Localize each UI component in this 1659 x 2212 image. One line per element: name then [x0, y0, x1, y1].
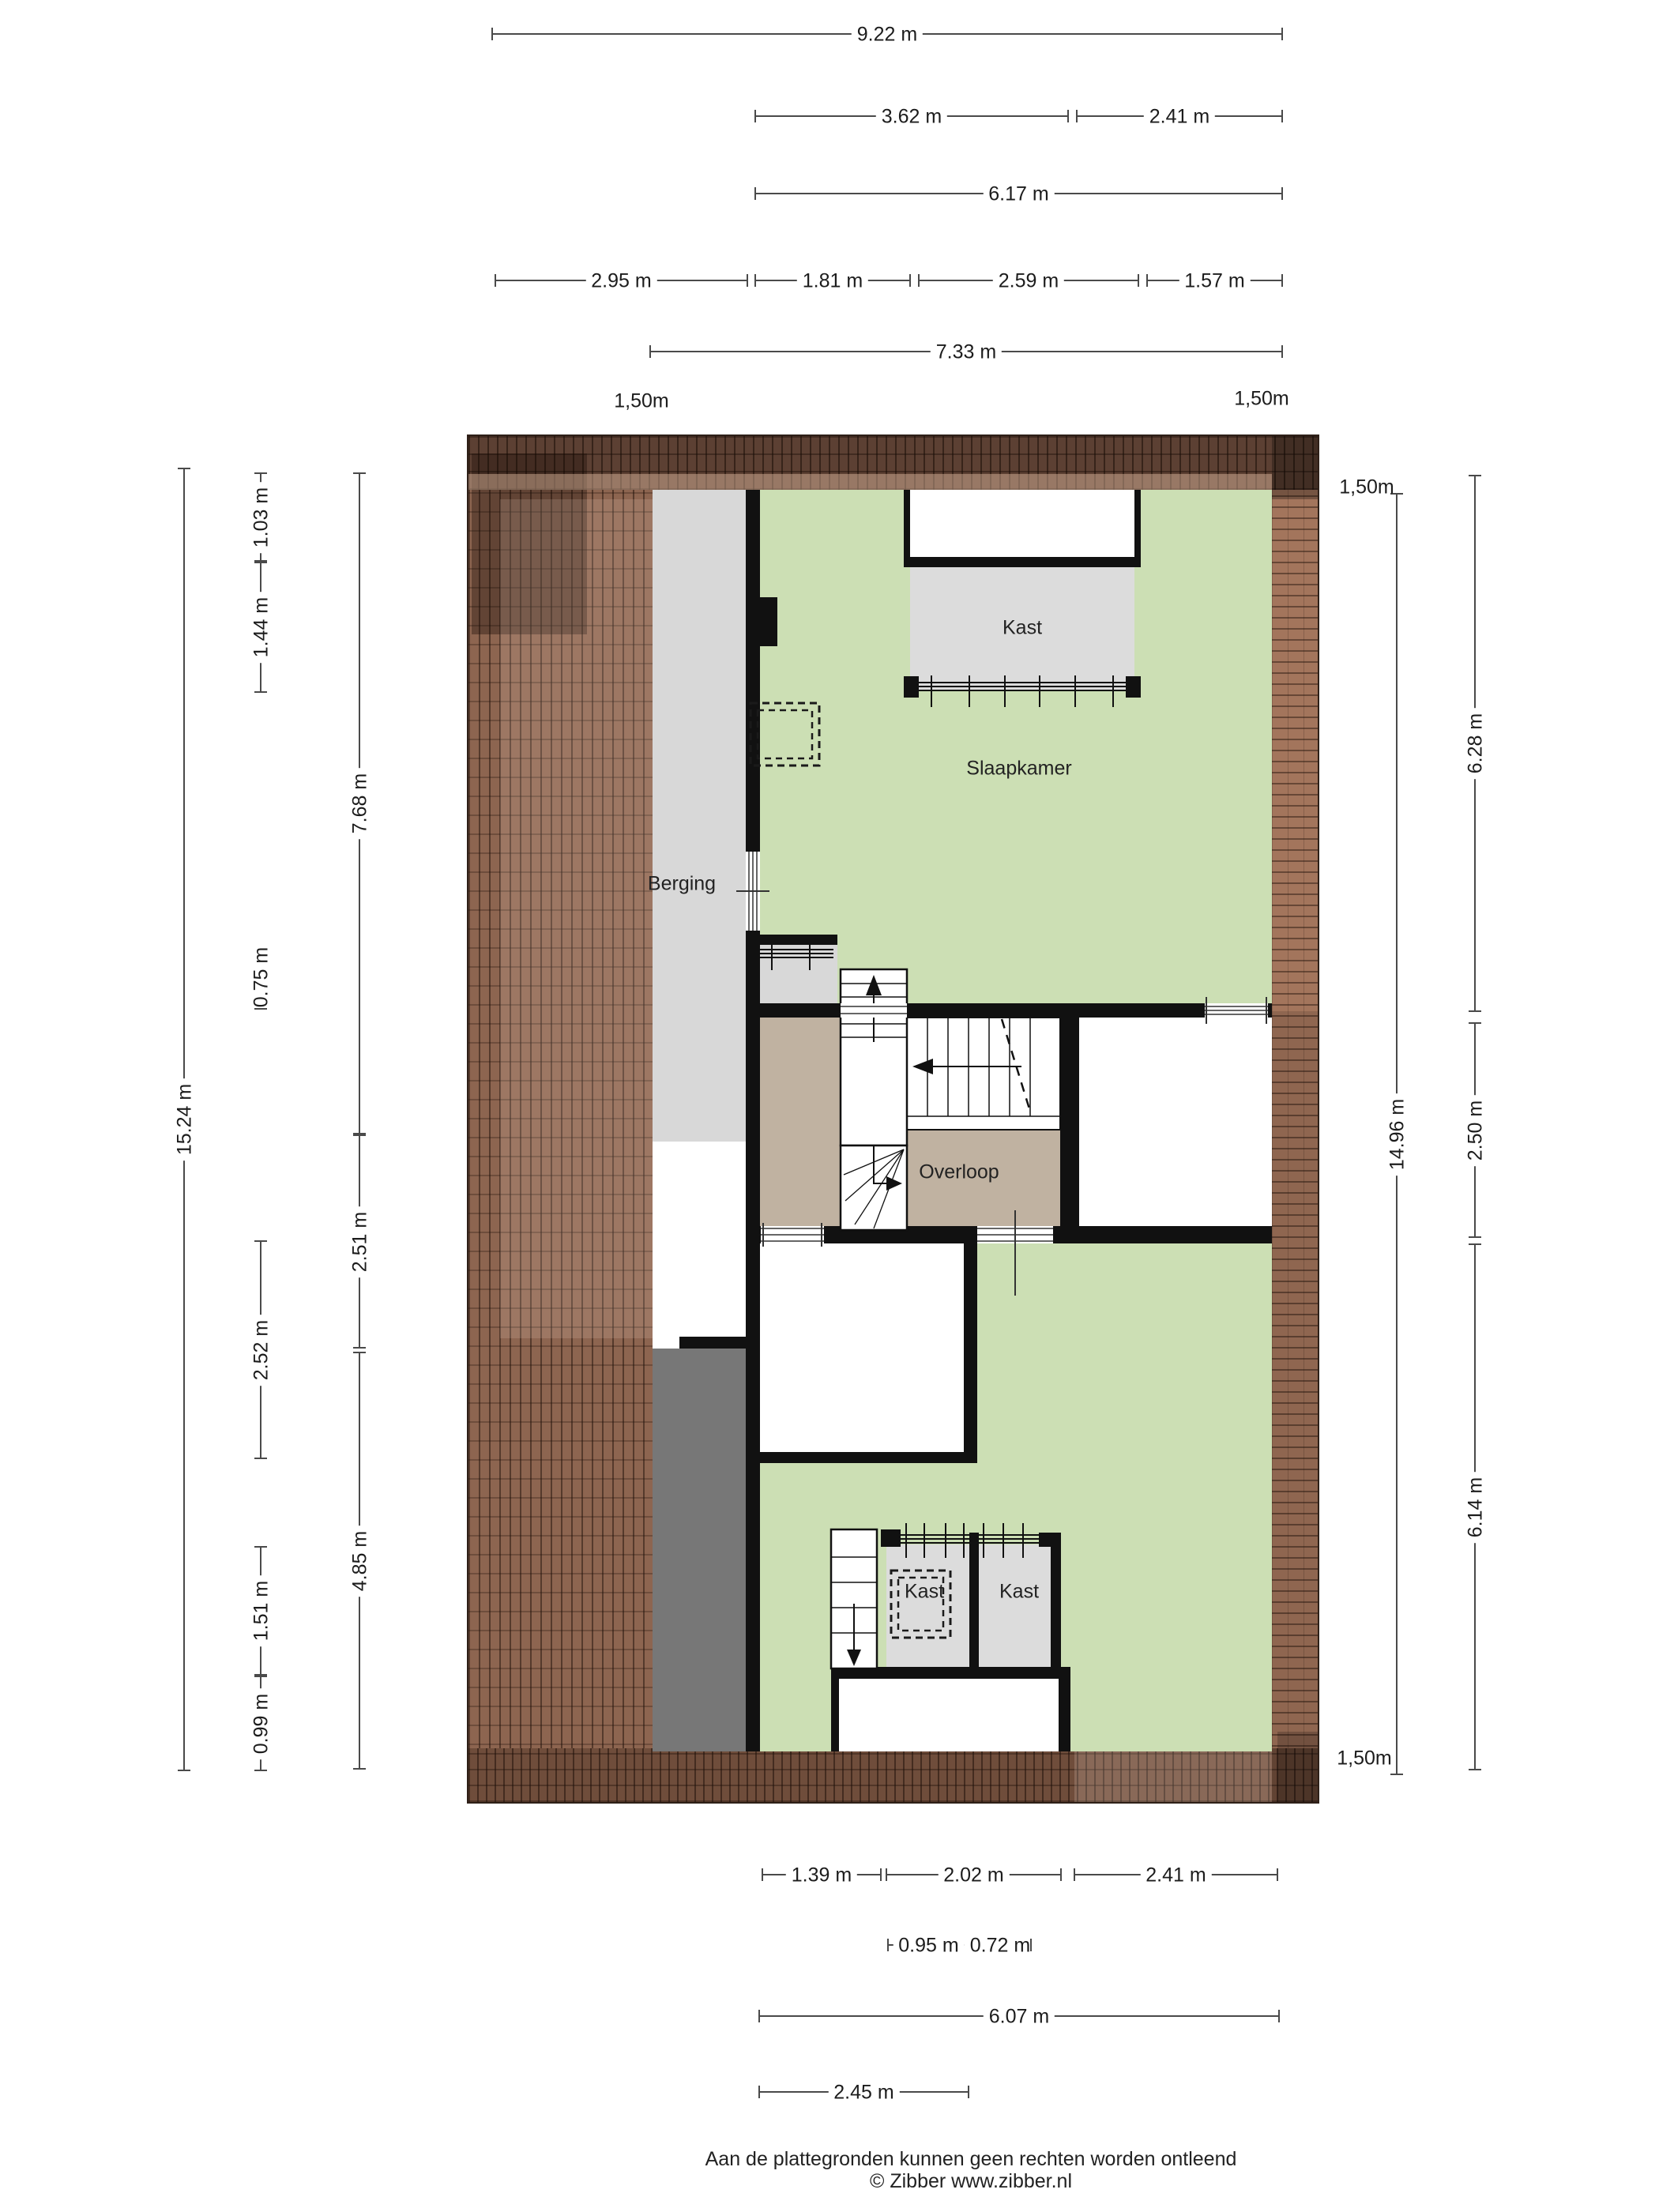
- dimension-h-2.41m: 2.41 m: [1074, 1874, 1277, 1875]
- window-bottom-wall: [761, 1223, 824, 1247]
- closet-rail-bottom-right: [979, 1523, 1039, 1558]
- loft-ladder: [831, 1529, 877, 1668]
- dimension-h-6.07m: 6.07 m: [759, 2015, 1279, 2017]
- closet-rail-small: [760, 942, 833, 970]
- skylight-dashed-top: [750, 703, 819, 766]
- dimension-v-15.24m-label: 15.24 m: [174, 1078, 197, 1161]
- closet-rail-bottom-left: [901, 1523, 969, 1558]
- dimension-h-1.39m-label: 1.39 m: [786, 1864, 857, 1887]
- dimension-v-4.85m-label: 4.85 m: [349, 1525, 372, 1596]
- window-left-wall: [736, 852, 769, 931]
- dimension-h-2.41m: 2.41 m: [1077, 115, 1282, 117]
- room-label-kast-bottom-right: Kast: [999, 1581, 1039, 1604]
- dimension-h-2.59m: 2.59 m: [919, 280, 1138, 281]
- headroom-annotation-3: 1,50m: [1337, 1747, 1391, 1770]
- dimension-v-6.28m: 6.28 m: [1474, 476, 1476, 1011]
- dimension-v-7.68m-label: 7.68 m: [349, 768, 372, 839]
- dimension-v-6.14m: 6.14 m: [1474, 1244, 1476, 1770]
- stairs-straight-up: [841, 969, 907, 1145]
- stairs-winder: [841, 1145, 907, 1230]
- dimension-h-2.02m: 2.02 m: [886, 1874, 1061, 1875]
- dimension-h-6.17m: 6.17 m: [755, 193, 1282, 194]
- dimension-v-2.52m: 2.52 m: [260, 1241, 261, 1458]
- room-label-berging: Berging: [648, 873, 716, 896]
- dimension-v-14.96m-label: 14.96 m: [1386, 1093, 1409, 1175]
- dimension-h-1.57m: 1.57 m: [1147, 280, 1282, 281]
- headroom-annotation-0: 1,50m: [614, 390, 668, 413]
- dimension-v-0.75m: 0.75 m: [260, 945, 261, 1009]
- dimension-v-7.68m: 7.68 m: [359, 473, 360, 1134]
- room-label-kast-bottom-left: Kast: [905, 1581, 944, 1604]
- dimension-h-6.07m-label: 6.07 m: [984, 2006, 1055, 2029]
- dimension-v-1.03m: 1.03 m: [260, 473, 261, 561]
- headroom-annotation-1: 1,50m: [1234, 388, 1288, 411]
- dimension-h-1.81m: 1.81 m: [755, 280, 910, 281]
- dimension-v-1.44m-label: 1.44 m: [250, 592, 273, 663]
- dimension-v-2.50m-label: 2.50 m: [1465, 1094, 1488, 1165]
- dimension-h-6.17m-label: 6.17 m: [983, 183, 1054, 206]
- dimension-h-2.41m-label: 2.41 m: [1140, 1864, 1211, 1887]
- dimension-h-0.72m: 0.72 m: [969, 1944, 1031, 1946]
- plan-symbols-layer: [468, 436, 1318, 1802]
- window-right-room: [1205, 997, 1268, 1024]
- footer-disclaimer: Aan de plattegronden kunnen geen rechten…: [705, 2148, 1237, 2171]
- dimension-h-2.59m-label: 2.59 m: [993, 270, 1064, 293]
- dimension-v-4.85m: 4.85 m: [359, 1352, 360, 1769]
- dimension-h-3.62m: 3.62 m: [755, 115, 1068, 117]
- dimension-h-1.81m-label: 1.81 m: [797, 270, 868, 293]
- footer-copyright: © Zibber www.zibber.nl: [870, 2170, 1072, 2193]
- dimension-h-2.95m-label: 2.95 m: [585, 270, 656, 293]
- dimension-h-9.22m-label: 9.22 m: [852, 24, 923, 47]
- door-overloop-slaapkamer: [977, 1210, 1053, 1296]
- dimension-h-2.45m: 2.45 m: [759, 2091, 969, 2093]
- dimension-v-2.52m-label: 2.52 m: [250, 1314, 273, 1385]
- dimension-v-6.14m-label: 6.14 m: [1465, 1471, 1488, 1542]
- dimension-h-9.22m: 9.22 m: [492, 33, 1282, 35]
- dimension-v-2.51m: 2.51 m: [359, 1135, 360, 1348]
- dimension-v-14.96m: 14.96 m: [1396, 494, 1398, 1774]
- dimension-v-6.28m-label: 6.28 m: [1465, 708, 1488, 779]
- room-label-slaapkamer: Slaapkamer: [966, 758, 1071, 781]
- floorplan: [468, 436, 1318, 1802]
- headroom-annotation-2: 1,50m: [1339, 476, 1394, 499]
- dimension-h-3.62m-label: 3.62 m: [876, 106, 947, 129]
- dimension-v-0.99m: 0.99 m: [260, 1676, 261, 1770]
- dimension-v-1.44m: 1.44 m: [260, 562, 261, 692]
- dimension-h-0.72m-label: 0.72 m: [965, 1935, 1036, 1958]
- room-label-kast-top: Kast: [1003, 617, 1042, 640]
- closet-rail-top-kast: [916, 675, 1128, 707]
- floorplan-page: Kast Slaapkamer Berging Overloop Kast Ka…: [0, 0, 1659, 2212]
- dimension-v-2.51m-label: 2.51 m: [349, 1206, 372, 1277]
- dimension-h-1.57m-label: 1.57 m: [1179, 270, 1250, 293]
- dimension-v-1.51m-label: 1.51 m: [250, 1575, 273, 1646]
- dimension-v-0.99m-label: 0.99 m: [250, 1687, 273, 1759]
- dimension-h-2.41m-label: 2.41 m: [1144, 106, 1215, 129]
- dimension-h-0.95m-label: 0.95 m: [893, 1935, 964, 1958]
- room-label-overloop: Overloop: [919, 1161, 999, 1184]
- dimension-v-0.75m-label: 0.75 m: [250, 941, 273, 1012]
- dimension-h-0.95m: 0.95 m: [888, 1944, 969, 1946]
- dimension-v-2.50m: 2.50 m: [1474, 1023, 1476, 1237]
- dimension-v-1.51m: 1.51 m: [260, 1547, 261, 1675]
- dimension-h-2.95m: 2.95 m: [495, 280, 747, 281]
- dimension-h-1.39m: 1.39 m: [762, 1874, 881, 1875]
- dimension-h-7.33m-label: 7.33 m: [931, 341, 1002, 364]
- dimension-h-2.45m-label: 2.45 m: [828, 2082, 899, 2105]
- wall-stair-opening: [841, 1003, 907, 1018]
- stairs-main: [907, 1018, 1060, 1130]
- dimension-v-1.03m-label: 1.03 m: [250, 481, 273, 552]
- dimension-v-15.24m: 15.24 m: [183, 468, 185, 1770]
- dimension-h-2.02m-label: 2.02 m: [938, 1864, 1009, 1887]
- dimension-h-7.33m: 7.33 m: [650, 351, 1282, 352]
